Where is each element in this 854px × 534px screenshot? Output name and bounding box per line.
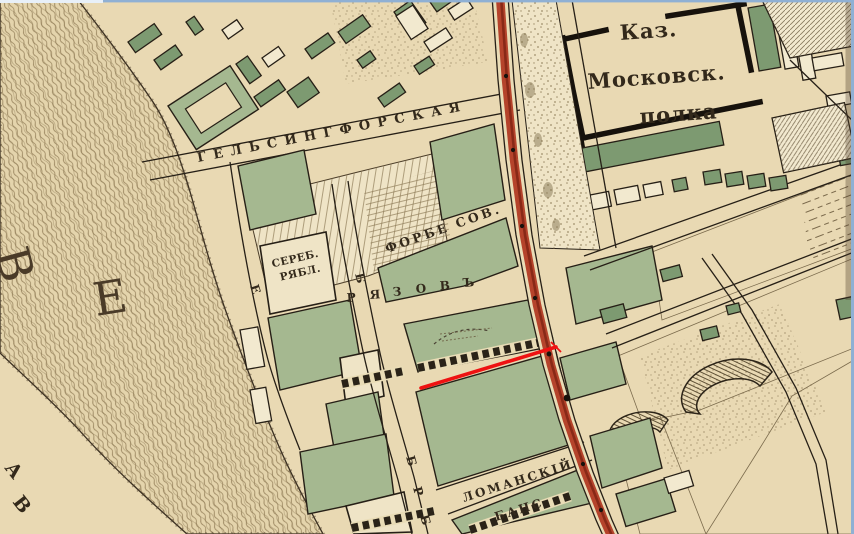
street-letter: Р: [346, 290, 356, 305]
street-letter: Ъ: [462, 275, 474, 290]
map-image[interactable]: Е В А В: [0, 0, 854, 534]
street-letter: Я: [369, 287, 381, 302]
street-letter: В: [439, 278, 450, 293]
barracks-label-line1: Каз.: [619, 16, 678, 45]
historic-map-svg: Е В А В: [0, 0, 854, 534]
street-letter: З: [392, 284, 402, 299]
scan-edge-shadow: [846, 0, 852, 300]
street-letter: О: [415, 281, 426, 296]
